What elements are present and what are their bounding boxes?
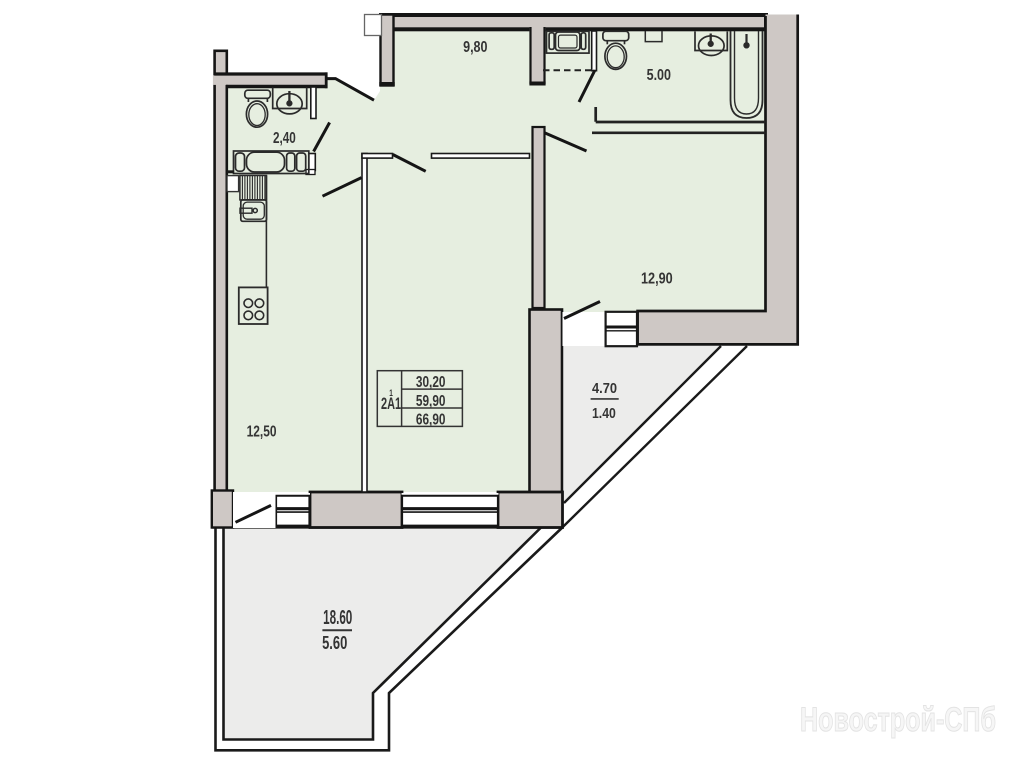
svg-text:12,50: 12,50: [247, 424, 277, 441]
svg-text:30,20: 30,20: [416, 374, 446, 391]
svg-text:5.60: 5.60: [322, 633, 347, 653]
svg-text:66,90: 66,90: [416, 411, 446, 428]
svg-text:18.60: 18.60: [323, 607, 352, 629]
svg-text:9,80: 9,80: [463, 39, 487, 56]
svg-text:1: 1: [389, 388, 393, 398]
svg-text:5.00: 5.00: [647, 67, 671, 84]
svg-text:Новострой-СПб: Новострой-СПб: [800, 701, 996, 739]
svg-text:59,90: 59,90: [416, 393, 446, 410]
svg-text:1.40: 1.40: [592, 406, 616, 422]
svg-text:4.70: 4.70: [592, 381, 617, 397]
svg-text:12,90: 12,90: [641, 271, 673, 288]
svg-text:2,40: 2,40: [273, 130, 296, 147]
